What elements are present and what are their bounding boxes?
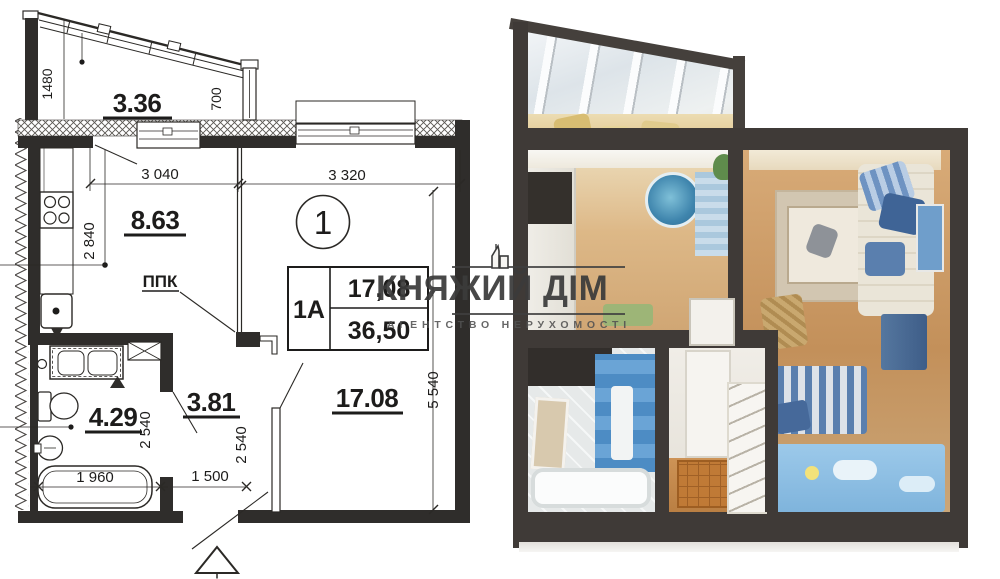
ppk-label: ППК [143,272,178,291]
render-front-door [689,298,735,346]
render-carpet-cloud-1 [833,460,877,480]
dim-kitchen-width: 3 040 [141,166,179,183]
render-hall-living-divider [765,344,778,512]
real-estate-listing-image: 3.36 8.63 4.29 3.81 17.08 ППК 3 040 3 32… [0,0,1000,579]
render-left-wall [513,22,528,548]
render-bathtub [531,468,651,508]
kitchen-area-label: 8.63 [131,205,180,235]
dim-balcony-height: 1480 [39,68,55,99]
unit-area-living: 17,08 [348,275,411,303]
bathroom-sink [34,436,63,460]
unit-area-total: 36,50 [348,317,411,345]
render-bathroom-mirror [531,397,570,471]
render-carpet-cloud-2 [899,476,935,492]
render-bottom-wall [513,512,968,542]
dim-hallway-width: 1 500 [191,468,229,485]
render-wall-art [916,204,944,272]
unit-marker: 1 [297,196,350,249]
render-kitchen-dark-cabinet [528,172,572,224]
kitchen-stove [40,192,73,228]
render-kitchen-gingham-table [695,172,729,256]
render-kitchen-round-table [645,172,701,228]
dim-hallway-depth: 2 540 [233,426,250,464]
render-middle-wall [513,330,778,348]
render-ladder-shelf [727,382,767,514]
render-kitchen-window-sill [528,150,728,168]
render-dresser [881,314,927,370]
render-bath-hall-divider [655,344,669,512]
living-room-area-label: 17.08 [336,383,399,413]
entrance-triangle [196,547,238,579]
apartment-3d-render [513,14,970,556]
render-top-wall [513,128,968,150]
render-bench-pillow [773,399,812,434]
render-bathroom-towel [611,386,633,460]
render-kitchen-mat [603,304,653,326]
dim-living-width: 3 320 [328,167,366,184]
render-hall-door-frame [685,350,731,458]
unit-type: 1А [293,296,325,324]
floor-plan: 3.36 8.63 4.29 3.81 17.08 ППК 3 040 3 32… [0,0,512,579]
render-ground-shadow [519,542,959,552]
dim-bathroom-depth: 2 540 [137,411,154,449]
render-toy [805,466,819,480]
render-bed-pillow-lower [865,242,905,276]
washing-machine [38,346,124,379]
render-right-wall [950,128,968,548]
dim-balcony-right: 700 [208,87,224,111]
kitchen-sink [41,294,72,339]
unit-marker-number: 1 [314,204,332,241]
unit-info-table: 1А 17,08 36,50 [288,267,428,350]
render-hall-shower-mat [677,460,729,508]
dim-kitchen-axis: 2 840 [81,222,98,260]
dim-tub-length: 1 960 [76,469,114,486]
toilet [38,392,78,421]
insulation-hatch-left [15,118,29,510]
vent-shaft [128,342,161,360]
bathroom-area-label: 4.29 [89,402,138,432]
balcony-area-label: 3.36 [113,88,162,118]
hallway-area-label: 3.81 [187,387,236,417]
dim-living-depth: 5 540 [425,371,442,409]
